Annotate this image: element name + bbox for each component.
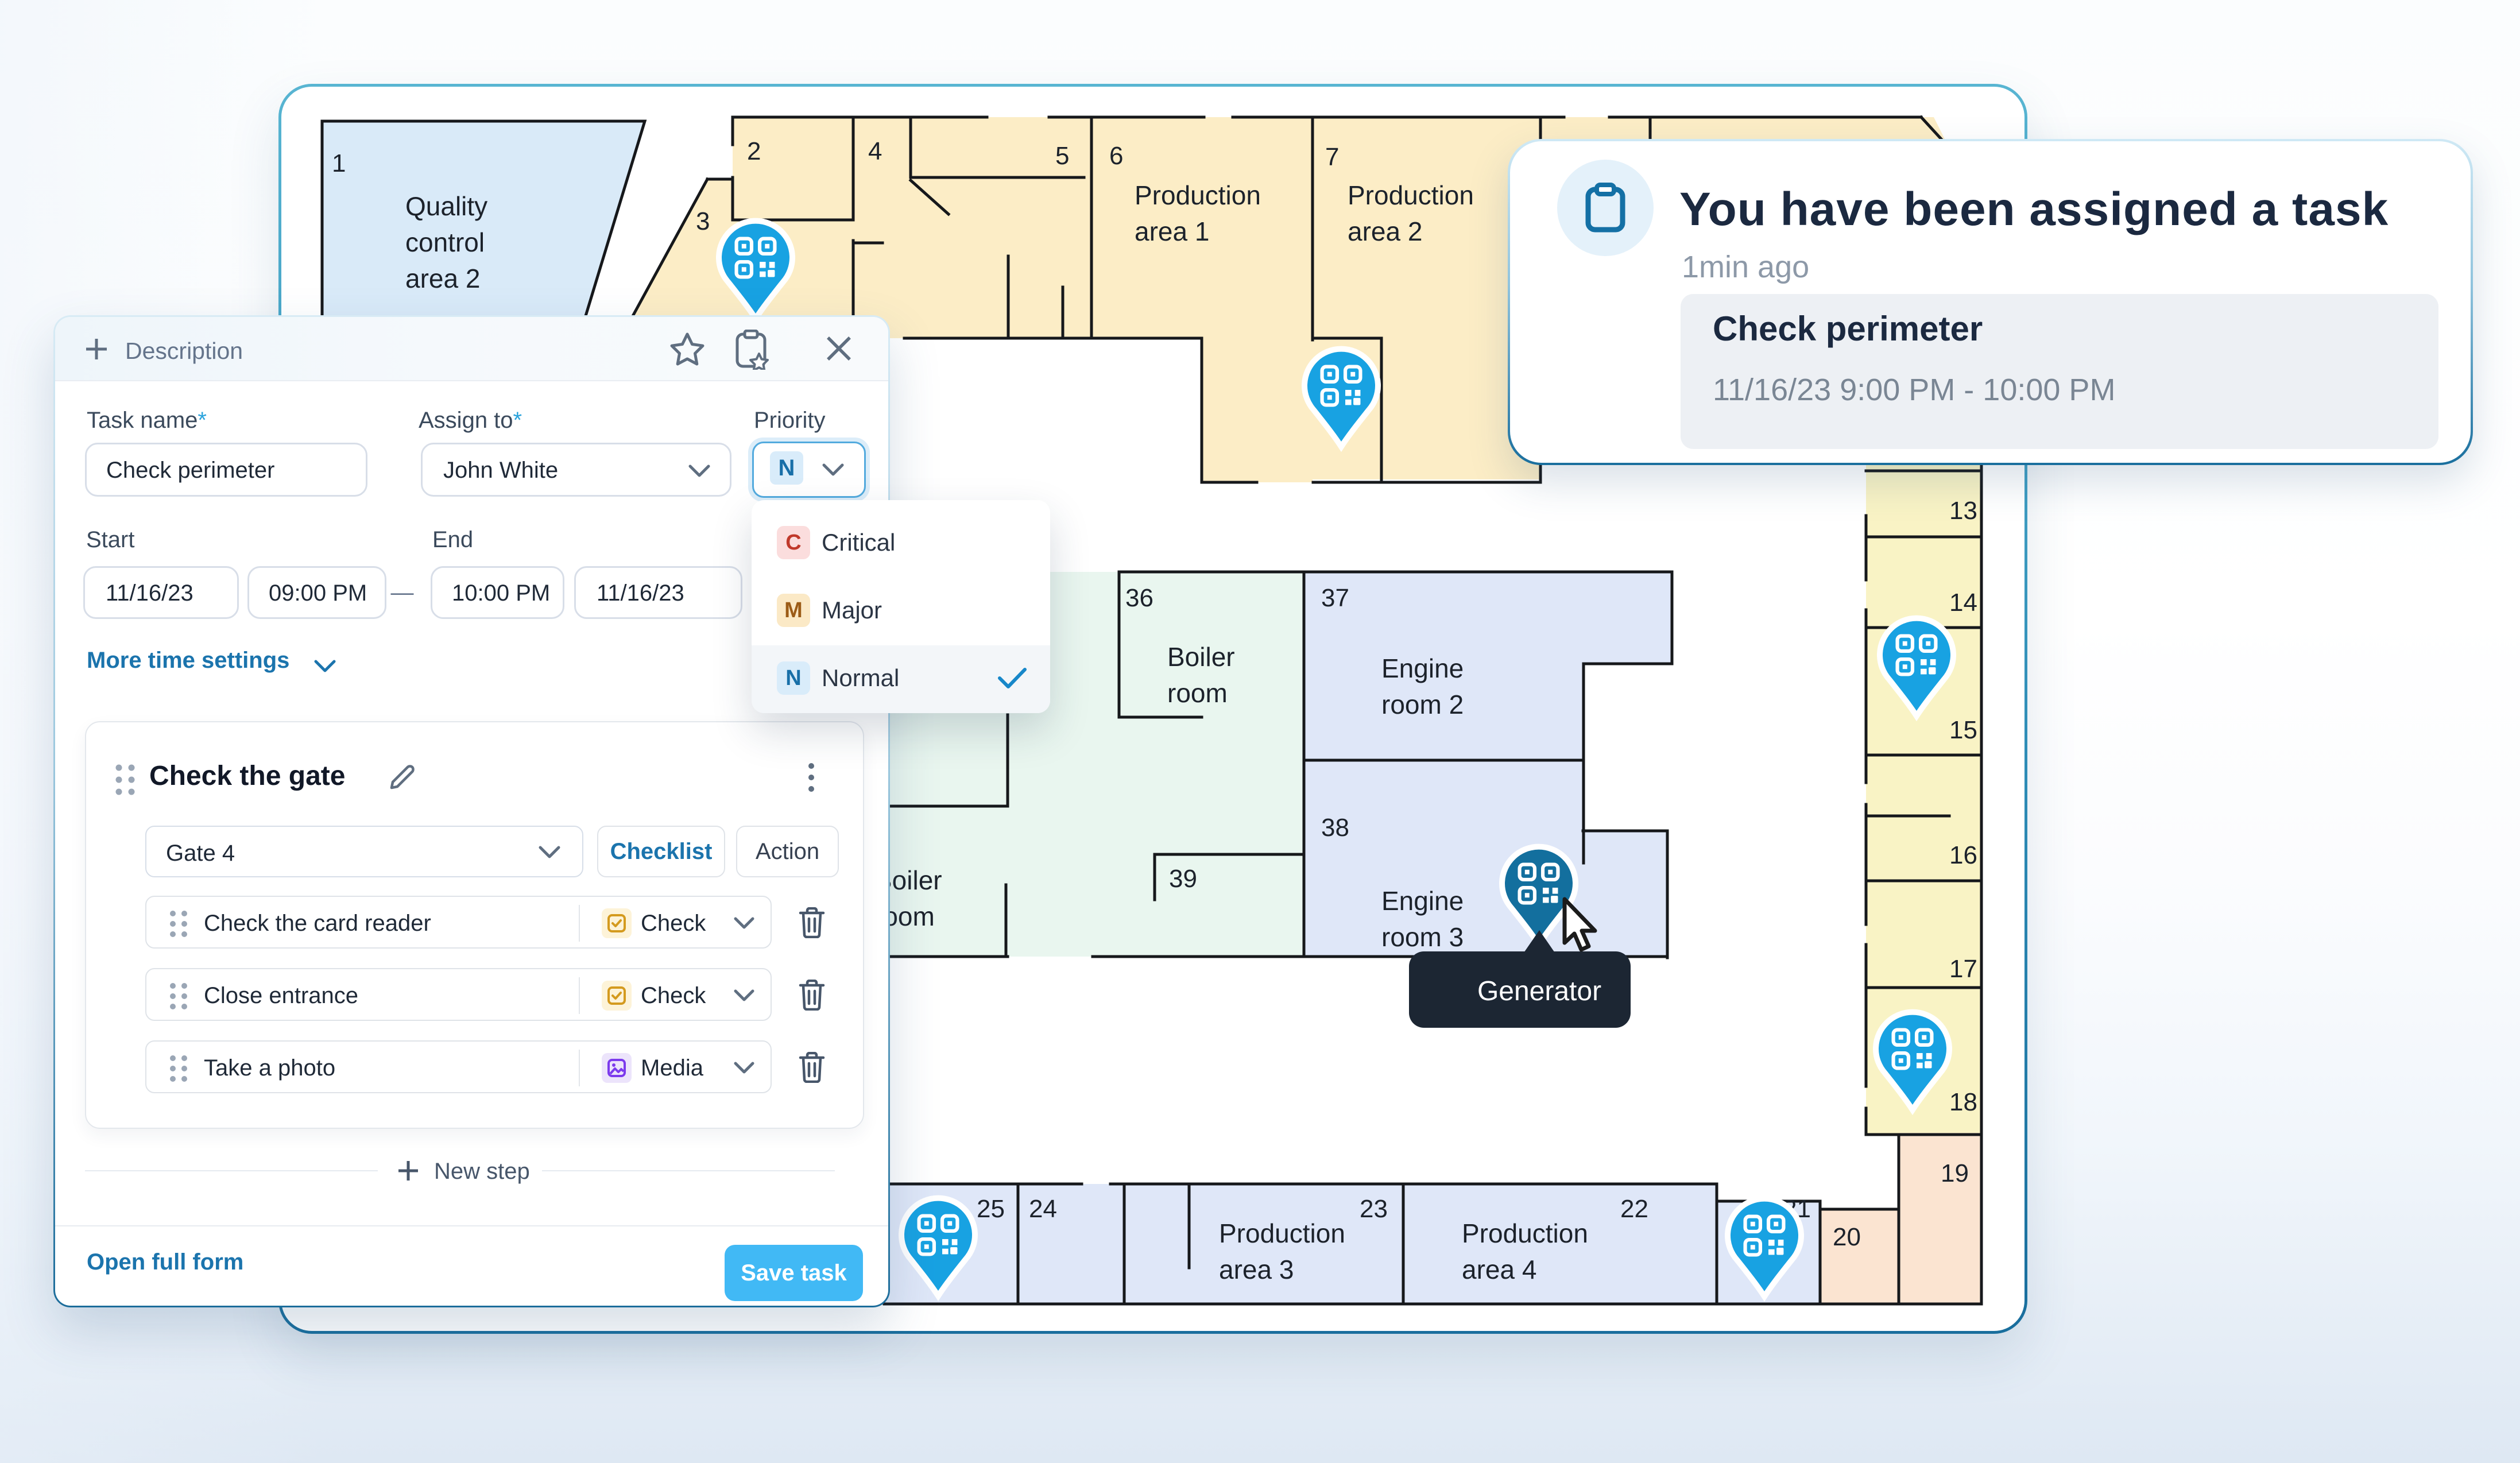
svg-text:Generator: Generator bbox=[1477, 976, 1601, 1007]
svg-text:area 2: area 2 bbox=[405, 264, 480, 293]
svg-text:15: 15 bbox=[1949, 716, 1977, 744]
svg-text:2: 2 bbox=[747, 137, 761, 165]
svg-text:13: 13 bbox=[1949, 497, 1977, 525]
svg-text:24: 24 bbox=[1029, 1195, 1057, 1223]
svg-text:20: 20 bbox=[1833, 1223, 1861, 1251]
svg-text:18: 18 bbox=[1949, 1088, 1977, 1116]
svg-text:area 1: area 1 bbox=[1135, 216, 1209, 246]
svg-text:area 4: area 4 bbox=[1462, 1255, 1536, 1284]
svg-text:1: 1 bbox=[332, 149, 346, 177]
svg-text:3: 3 bbox=[696, 207, 710, 235]
svg-text:area 3: area 3 bbox=[1219, 1255, 1294, 1284]
svg-text:14: 14 bbox=[1949, 589, 1977, 617]
svg-text:22: 22 bbox=[1620, 1195, 1648, 1223]
svg-text:Production: Production bbox=[1462, 1218, 1588, 1248]
svg-text:19: 19 bbox=[1941, 1159, 1969, 1187]
svg-text:17: 17 bbox=[1949, 955, 1977, 983]
svg-text:Production: Production bbox=[1135, 180, 1261, 210]
svg-text:37: 37 bbox=[1321, 584, 1349, 612]
svg-text:room 3: room 3 bbox=[1381, 922, 1464, 952]
svg-text:room: room bbox=[1167, 678, 1228, 708]
svg-text:Engine: Engine bbox=[1381, 886, 1464, 916]
svg-text:area 2: area 2 bbox=[1348, 216, 1422, 246]
svg-text:39: 39 bbox=[1169, 865, 1197, 893]
svg-text:23: 23 bbox=[1360, 1195, 1388, 1223]
svg-text:6: 6 bbox=[1109, 142, 1123, 170]
svg-text:4: 4 bbox=[868, 137, 882, 165]
svg-text:Production: Production bbox=[1219, 1218, 1345, 1248]
svg-text:7: 7 bbox=[1325, 143, 1339, 171]
svg-text:Engine: Engine bbox=[1381, 653, 1464, 683]
svg-text:16: 16 bbox=[1949, 841, 1977, 869]
svg-text:room 2: room 2 bbox=[1381, 690, 1464, 719]
svg-text:5: 5 bbox=[1055, 142, 1069, 170]
svg-text:38: 38 bbox=[1321, 814, 1349, 842]
svg-text:25: 25 bbox=[977, 1195, 1005, 1223]
svg-text:Quality: Quality bbox=[405, 191, 487, 221]
svg-text:Boiler: Boiler bbox=[1167, 642, 1235, 672]
svg-text:Production: Production bbox=[1348, 180, 1474, 210]
svg-text:36: 36 bbox=[1125, 584, 1153, 612]
svg-text:control: control bbox=[405, 227, 485, 257]
